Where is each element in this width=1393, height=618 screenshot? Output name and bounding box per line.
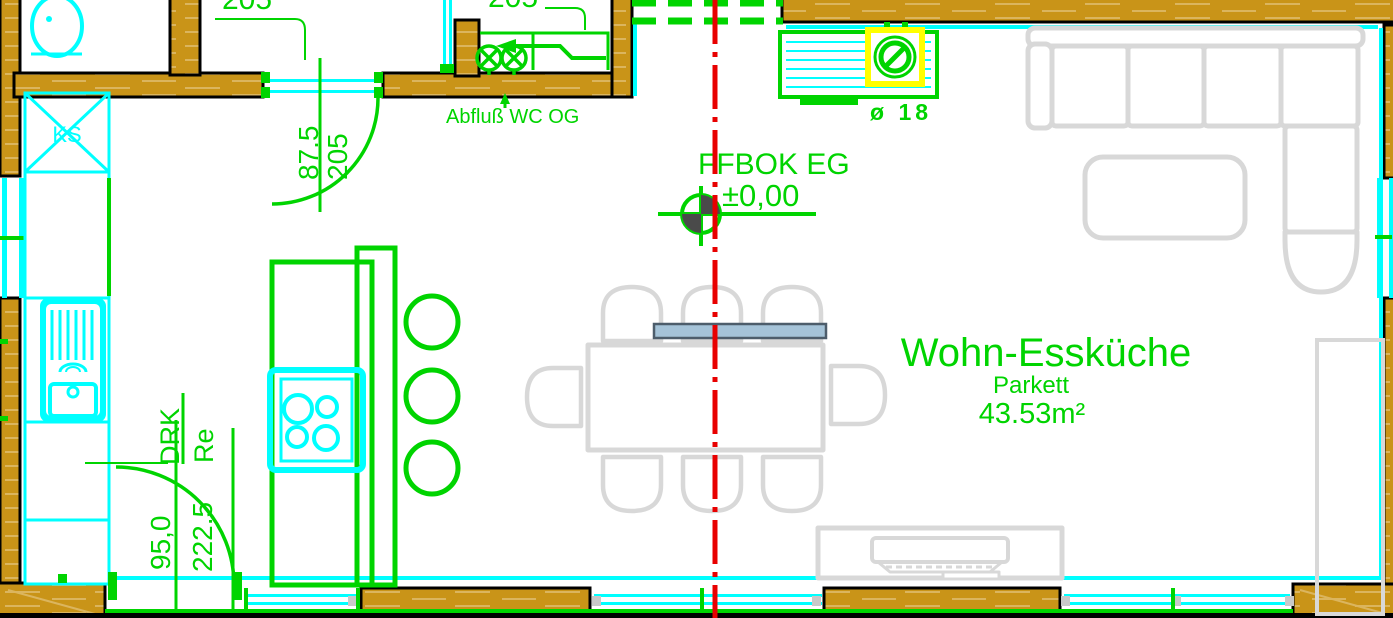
chair	[831, 366, 885, 424]
bottom-outline	[0, 613, 1393, 618]
stool	[406, 296, 458, 348]
dining-set	[527, 287, 885, 511]
floorplan-stage: 87.5 205 205 205 Abfluß WC OG	[0, 0, 1393, 618]
chair	[527, 368, 581, 426]
shaft-label: KS	[52, 122, 81, 147]
drk-label: DRK	[155, 408, 185, 465]
window-right-wall	[1375, 178, 1393, 298]
radiator-diameter-label: ø 18	[870, 99, 932, 125]
chair	[683, 457, 741, 511]
counter-edge-mark	[107, 178, 111, 296]
wall-top-right	[782, 0, 1393, 22]
level-marker-value: ±0,00	[722, 178, 799, 213]
re-label: Re	[189, 428, 219, 463]
window-left-wall	[0, 178, 26, 298]
drain-note-label: Abfluß WC OG	[446, 106, 579, 128]
chair	[603, 457, 661, 511]
tv-icon	[872, 538, 1008, 562]
dim-upper-door-height: 205	[322, 133, 353, 180]
stool	[406, 370, 458, 422]
sofa-chaise	[1285, 232, 1357, 292]
sofa-cushion	[1285, 126, 1357, 232]
wall-right-upper	[1384, 25, 1393, 178]
stool	[406, 442, 458, 494]
drain-icons	[477, 46, 526, 75]
toilet-icon	[31, 0, 82, 56]
sofa-cushion	[1052, 46, 1128, 126]
coffee-table	[1085, 157, 1245, 238]
sofa-cushion	[1204, 46, 1281, 126]
sofa-cushion	[1281, 46, 1358, 126]
dim-terrace-door-height: 222.5	[187, 502, 218, 572]
dim-terrace-door-width: 95,0	[145, 516, 176, 571]
bench-bar	[654, 324, 826, 338]
overhead-dashed-lines	[632, 3, 783, 21]
tv-sideboard	[818, 528, 1062, 579]
wall-wc-right	[612, 0, 632, 97]
sofa-cushion	[1128, 46, 1204, 126]
dining-table	[588, 345, 823, 450]
room-area: 43.53m²	[979, 398, 1086, 430]
valve-highlight	[868, 30, 922, 84]
wall-stub-1	[170, 0, 200, 75]
wall-right-lower	[1384, 298, 1393, 590]
upper-door	[215, 19, 383, 212]
dim-clipped-left: 205	[222, 0, 272, 16]
sink-icon	[40, 298, 106, 422]
wall-stub-2	[455, 20, 479, 76]
level-marker-label: FFBOK EG	[698, 148, 850, 181]
chair	[603, 287, 661, 341]
windows-bottom	[105, 588, 1294, 613]
dim-upper-door-width: 87.5	[293, 126, 324, 181]
wall-cabinet-right	[1317, 340, 1383, 614]
wall-top-band-mid	[383, 73, 613, 97]
stove-icon	[270, 370, 363, 470]
room-name: Wohn-Essküche	[901, 331, 1192, 375]
floorplan-canvas[interactable]: 87.5 205 205 205 Abfluß WC OG	[0, 0, 1393, 618]
room-flooring: Parkett	[993, 372, 1069, 399]
bar-stools	[406, 296, 458, 494]
chair	[763, 457, 821, 511]
dim-clipped-right: 205	[488, 0, 538, 14]
